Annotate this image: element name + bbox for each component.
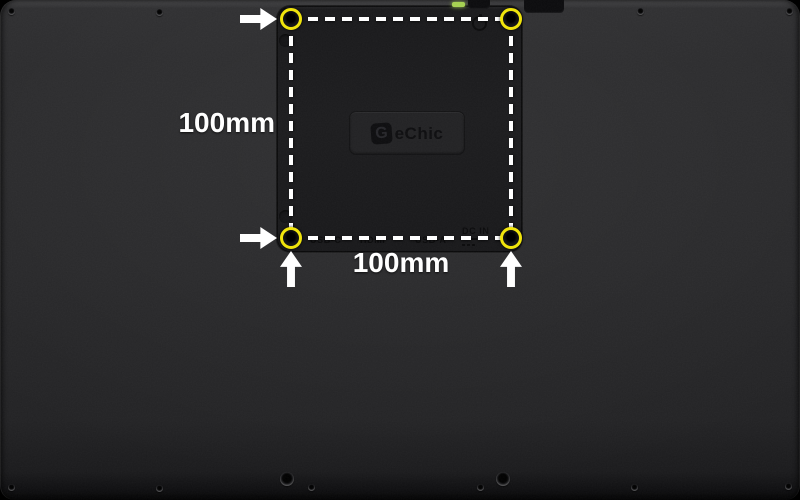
mount-hole-marker-bottom-left [280, 227, 302, 249]
chassis-screw-hole [477, 484, 484, 491]
monitor-back-shell: G eChic USB-C HDMI USB-A DC IN 100mm 100… [0, 0, 800, 500]
arrow-right-icon-bottom-left [240, 227, 277, 249]
vesa-dashed-line-bottom [291, 236, 511, 240]
dimension-label-vertical: 100mm [160, 108, 275, 139]
power-button-slot [468, 0, 490, 9]
arrow-up-icon-bottom-right [500, 251, 522, 287]
stand-mount-hole [496, 472, 510, 486]
chassis-screw-hole [785, 483, 792, 490]
mount-hole-marker-bottom-right [500, 227, 522, 249]
chassis-screw-hole [631, 484, 638, 491]
chassis-screw-hole [8, 484, 15, 491]
power-led-indicator [452, 2, 465, 7]
arrow-up-icon-bottom-left [280, 251, 302, 287]
mount-hole-marker-top-right [500, 8, 522, 30]
chassis-screw-hole [8, 8, 15, 15]
vesa-dashed-line-right [509, 19, 513, 238]
gechic-logo-mark: G [370, 122, 392, 144]
vesa-dashed-line-top [291, 17, 511, 21]
chassis-screw-hole [156, 485, 163, 492]
chassis-screw-hole [637, 8, 644, 15]
brand-name-text: eChic [395, 125, 444, 142]
stand-mount-hole [280, 472, 294, 486]
chassis-screw-hole [786, 8, 793, 15]
chassis-screw-hole [308, 484, 315, 491]
dimension-label-horizontal: 100mm [346, 248, 456, 279]
brand-label-plate: G eChic [350, 112, 464, 154]
port-label-dc-in-text: DC IN [462, 226, 490, 236]
connector-recess [524, 0, 564, 13]
arrow-right-icon-top-left [240, 8, 277, 30]
vesa-dashed-line-left [289, 19, 293, 238]
mount-hole-marker-top-left [280, 8, 302, 30]
scene: G eChic USB-C HDMI USB-A DC IN 100mm 100… [0, 0, 800, 500]
gechic-logo-g: G [374, 125, 388, 142]
chassis-screw-hole [156, 9, 163, 16]
